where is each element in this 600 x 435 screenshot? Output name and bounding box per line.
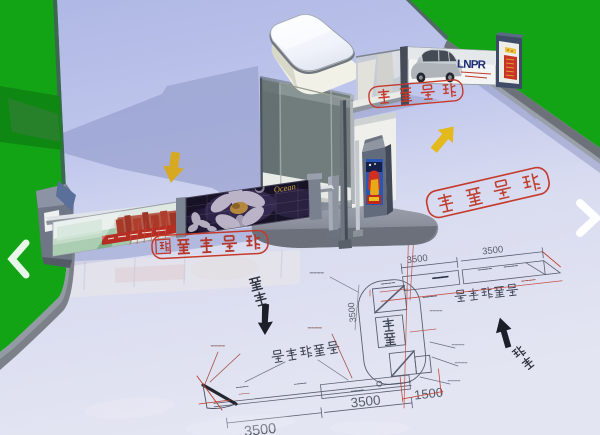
svg-text:1500: 1500 (413, 385, 443, 403)
svg-text:LNPR: LNPR (457, 58, 487, 71)
